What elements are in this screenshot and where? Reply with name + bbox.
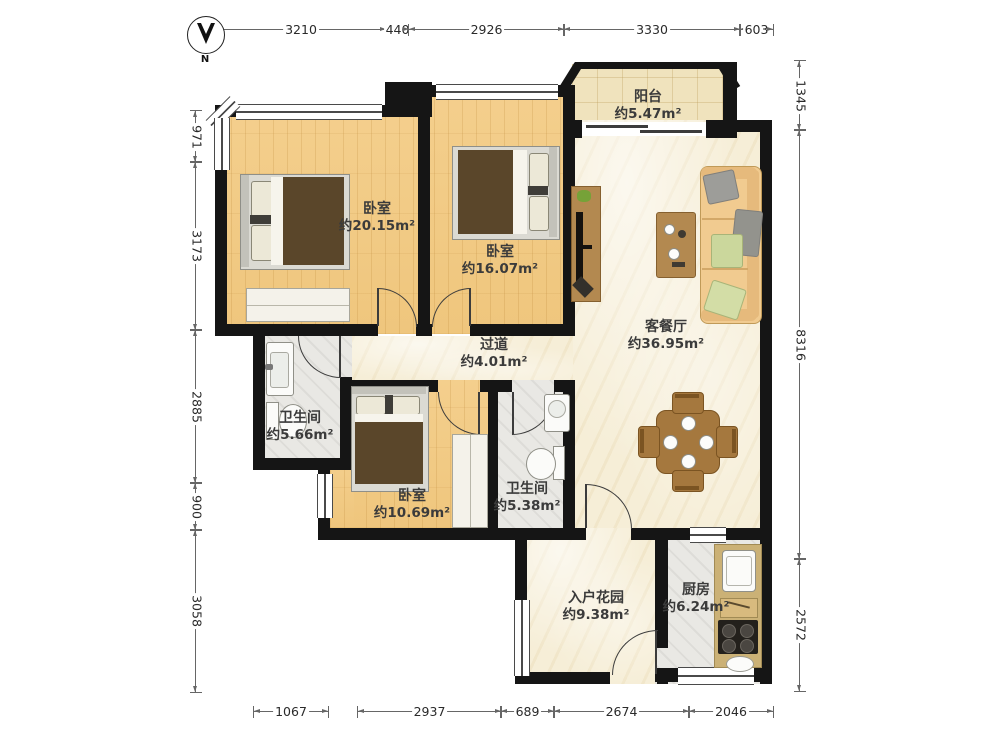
dim-left-3: 900 (190, 482, 202, 531)
room-label-bedroom-master: 卧室约20.15m² (339, 200, 415, 236)
pillow (390, 396, 420, 415)
bed-sheet (513, 150, 527, 234)
dim-top-0: 3210 (215, 24, 387, 36)
door-leaf (478, 392, 480, 434)
decor-icon (678, 230, 686, 238)
window (214, 118, 230, 170)
plate-icon (663, 435, 678, 450)
wardrobe (246, 288, 350, 322)
chair-backrest (732, 429, 736, 453)
sliding-door-panel (640, 130, 702, 133)
bed-blanket (355, 422, 423, 484)
bed-blanket (458, 150, 513, 234)
pillow (529, 196, 549, 231)
dim-left-1: 3173 (190, 161, 202, 331)
dining-chair (672, 470, 704, 492)
sink-basin (726, 556, 752, 586)
pillow (356, 396, 386, 415)
dim-right-0: 1345 (794, 60, 806, 131)
bed-headboard (241, 175, 249, 267)
chair-backrest (675, 486, 699, 490)
bed-headboard (352, 387, 426, 394)
tv-stand (583, 245, 592, 249)
dim-right-1: 8316 (794, 129, 806, 560)
wall (706, 120, 737, 138)
bed-blanket (283, 177, 344, 265)
door-leaf (339, 336, 341, 377)
wall (215, 324, 378, 336)
wall (470, 324, 573, 336)
dining-chair (672, 392, 704, 414)
dim-top-2: 2926 (408, 24, 565, 36)
sink-basin (270, 352, 289, 388)
wall (488, 380, 498, 540)
kitchen-pass-window (690, 527, 726, 543)
dim-left-0: 971 (190, 110, 202, 163)
pillow (251, 225, 273, 261)
room-label-kitchen: 厨房约6.24m² (663, 581, 730, 617)
window (317, 474, 333, 518)
toilet (526, 448, 556, 480)
window (436, 84, 558, 100)
sofa-pillow-green (711, 234, 743, 268)
door-leaf (469, 288, 471, 326)
window (236, 104, 382, 120)
floor-plan-canvas: 阳台约5.47m² 卧室约20.15m² 卧室约16.07m² 客餐厅约36.9… (0, 0, 1000, 750)
room-label-bathroom-main: 卫生间约5.66m² (267, 409, 334, 445)
door-leaf (377, 288, 379, 326)
burner-icon (722, 639, 736, 653)
wardrobe (452, 434, 488, 528)
compass-north-label: N (201, 54, 209, 65)
coffee-table (656, 212, 696, 278)
cup-icon (668, 248, 680, 260)
room-label-entry-garden: 入户花园约9.38m² (563, 589, 630, 625)
room-label-living-dining: 客餐厅约36.95m² (628, 318, 704, 354)
sliding-door-panel (586, 125, 648, 128)
dining-chair (716, 426, 738, 458)
wall (318, 528, 586, 540)
dim-bottom-0: 1067 (253, 706, 329, 718)
burner-icon (722, 624, 736, 638)
room-label-bathroom-second: 卫生间约5.38m² (494, 480, 561, 516)
bed-sheet (355, 414, 423, 422)
sofa-seam (702, 268, 748, 270)
dim-left-2: 2885 (190, 329, 202, 484)
room-label-balcony: 阳台约5.47m² (615, 88, 682, 124)
compass-icon (187, 16, 225, 54)
balcony-railing (575, 62, 723, 69)
dim-left-4: 3058 (190, 529, 202, 693)
room-label-bedroom-third: 卧室约10.69m² (374, 487, 450, 523)
burner-icon (740, 624, 754, 638)
entry-door-leaf (655, 630, 657, 674)
plate-icon (699, 435, 714, 450)
sink-basin (548, 400, 566, 418)
dim-right-2: 2572 (794, 558, 806, 692)
dim-bottom-3: 2674 (553, 706, 690, 718)
room-label-hallway: 过道约4.01m² (461, 336, 528, 372)
north-arrow-notch (201, 23, 211, 34)
pillow-gap (385, 395, 393, 414)
plate-icon (681, 454, 696, 469)
bed-sheet (271, 177, 283, 265)
plant-icon (577, 190, 591, 202)
wall (253, 324, 265, 470)
chair-backrest (640, 429, 644, 453)
dim-bottom-4: 2046 (688, 706, 774, 718)
dining-chair (638, 426, 660, 458)
door-leaf (512, 392, 514, 434)
wall (563, 120, 582, 138)
wall (726, 528, 772, 540)
bed-headboard (549, 147, 557, 237)
wall (418, 105, 430, 336)
window (514, 600, 530, 676)
remote-icon (672, 262, 685, 267)
burner-icon (740, 639, 754, 653)
chair-backrest (675, 394, 699, 398)
faucet-icon (265, 364, 273, 370)
dim-top-1: 440 (385, 24, 410, 36)
door-leaf (585, 484, 587, 528)
wall (253, 458, 352, 470)
cup-icon (664, 224, 675, 235)
pillow-gap (250, 215, 272, 224)
plate-icon (681, 416, 696, 431)
dim-top-4: 603 (739, 24, 774, 36)
wall (416, 324, 432, 336)
dim-bottom-1: 2937 (357, 706, 502, 718)
room-label-bedroom-second: 卧室约16.07m² (462, 243, 538, 279)
pillow (251, 181, 273, 217)
pillow (529, 153, 549, 188)
dim-bottom-2: 689 (500, 706, 555, 718)
pillow-gap (528, 186, 548, 195)
dim-top-3: 3330 (563, 24, 741, 36)
bowl (726, 656, 754, 672)
